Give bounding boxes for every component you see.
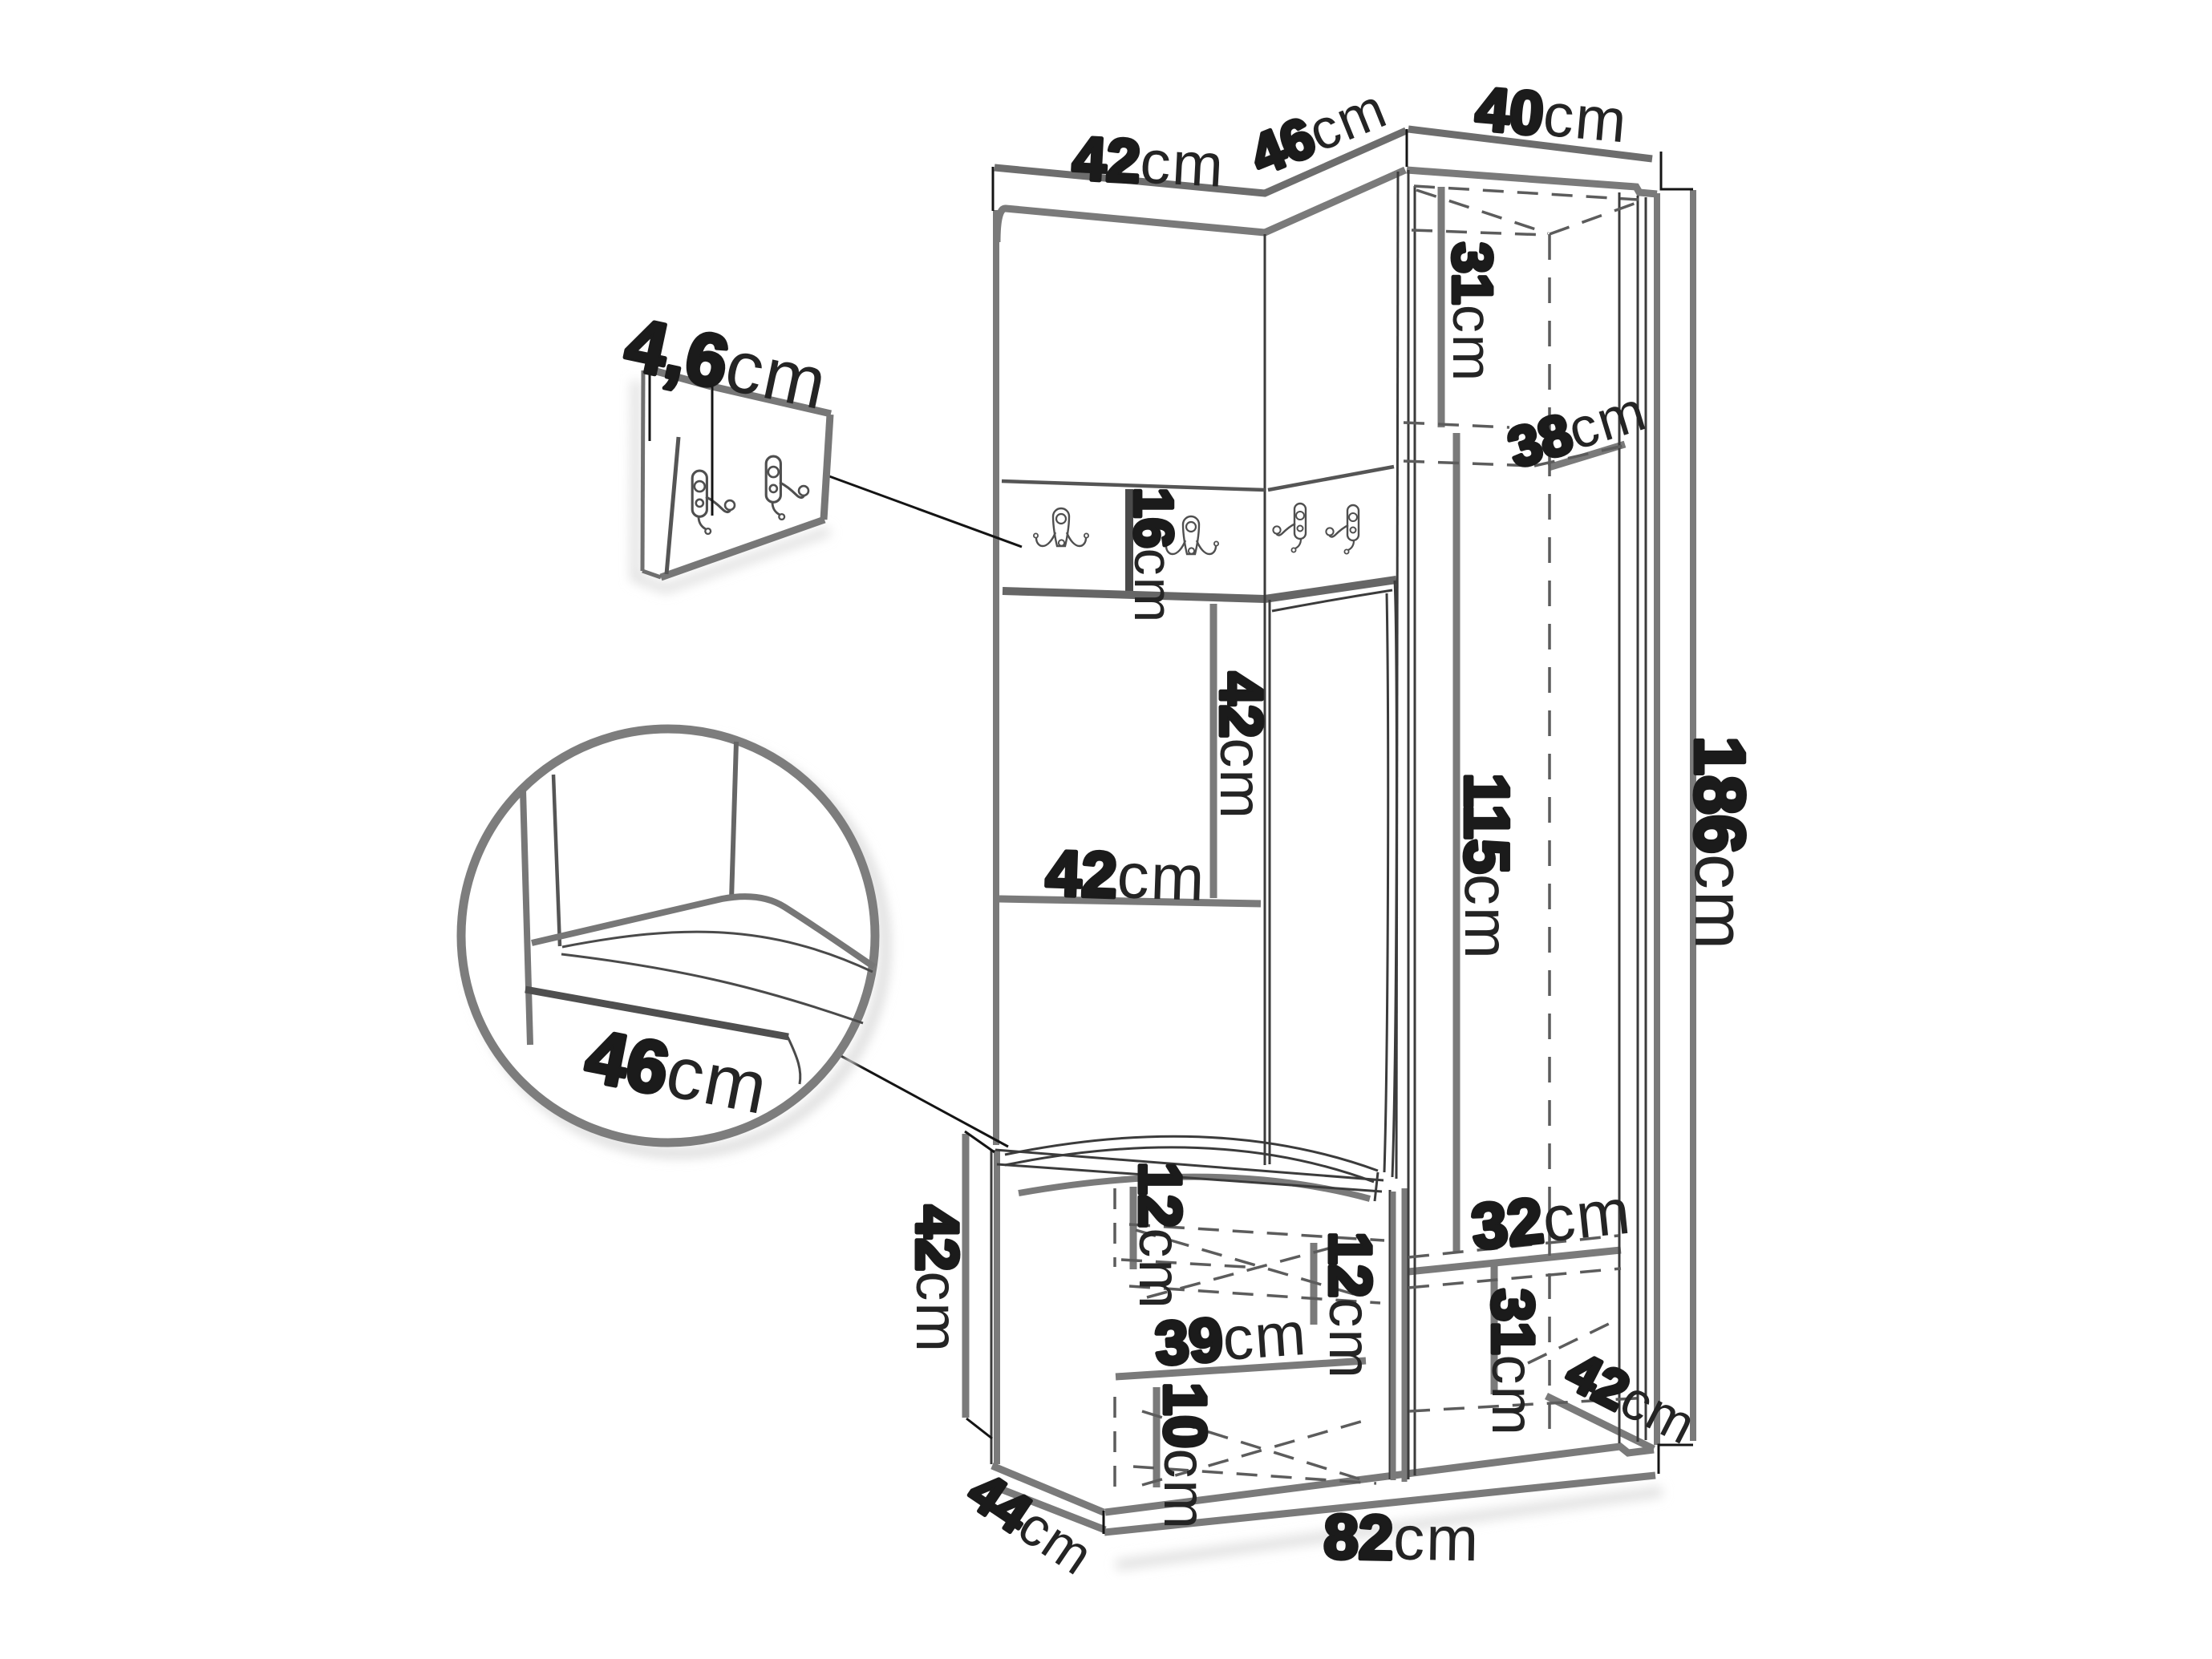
svg-text:10cm: 10cm [1152,1382,1218,1531]
svg-text:42cm: 42cm [1208,672,1274,820]
svg-text:82cm: 82cm [1323,1501,1481,1574]
svg-text:42cm: 42cm [1044,837,1207,914]
svg-text:12cm: 12cm [1127,1162,1193,1310]
svg-text:12cm: 12cm [1317,1232,1384,1380]
svg-text:186cm: 186cm [1680,736,1760,951]
svg-text:39cm: 39cm [1153,1300,1309,1378]
svg-text:31cm: 31cm [1441,242,1504,382]
svg-text:42cm: 42cm [1071,124,1226,200]
svg-text:40cm: 40cm [1473,75,1631,156]
svg-text:16cm: 16cm [1123,488,1184,624]
svg-text:42cm: 42cm [904,1205,970,1354]
svg-text:115cm: 115cm [1452,773,1522,961]
svg-text:31cm: 31cm [1480,1289,1546,1437]
